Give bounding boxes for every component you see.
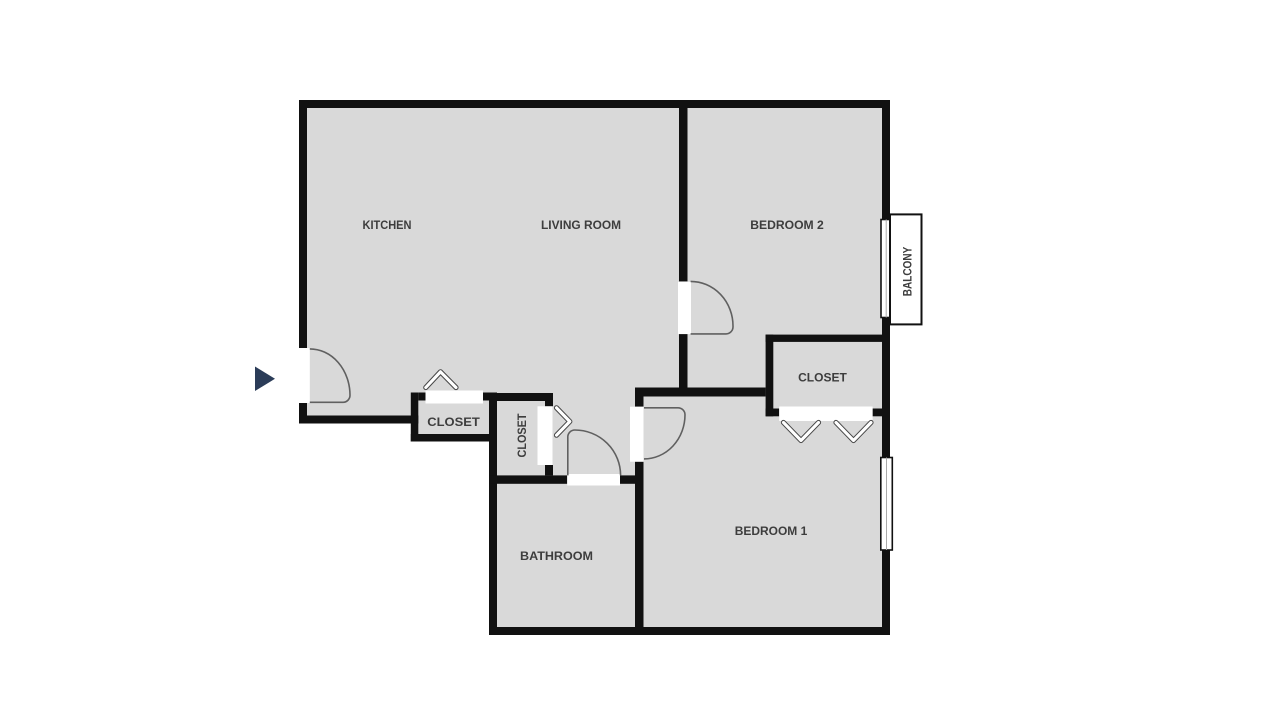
svg-text:CLOSET: CLOSET: [515, 413, 529, 457]
svg-text:BATHROOM: BATHROOM: [520, 549, 593, 563]
svg-text:BEDROOM 2: BEDROOM 2: [750, 218, 824, 232]
svg-text:BALCONY: BALCONY: [901, 247, 915, 297]
svg-text:BEDROOM 1: BEDROOM 1: [735, 524, 808, 538]
svg-text:KITCHEN: KITCHEN: [363, 218, 412, 232]
svg-text:LIVING ROOM: LIVING ROOM: [541, 218, 621, 232]
svg-text:CLOSET: CLOSET: [427, 415, 480, 429]
svg-text:CLOSET: CLOSET: [798, 371, 847, 385]
